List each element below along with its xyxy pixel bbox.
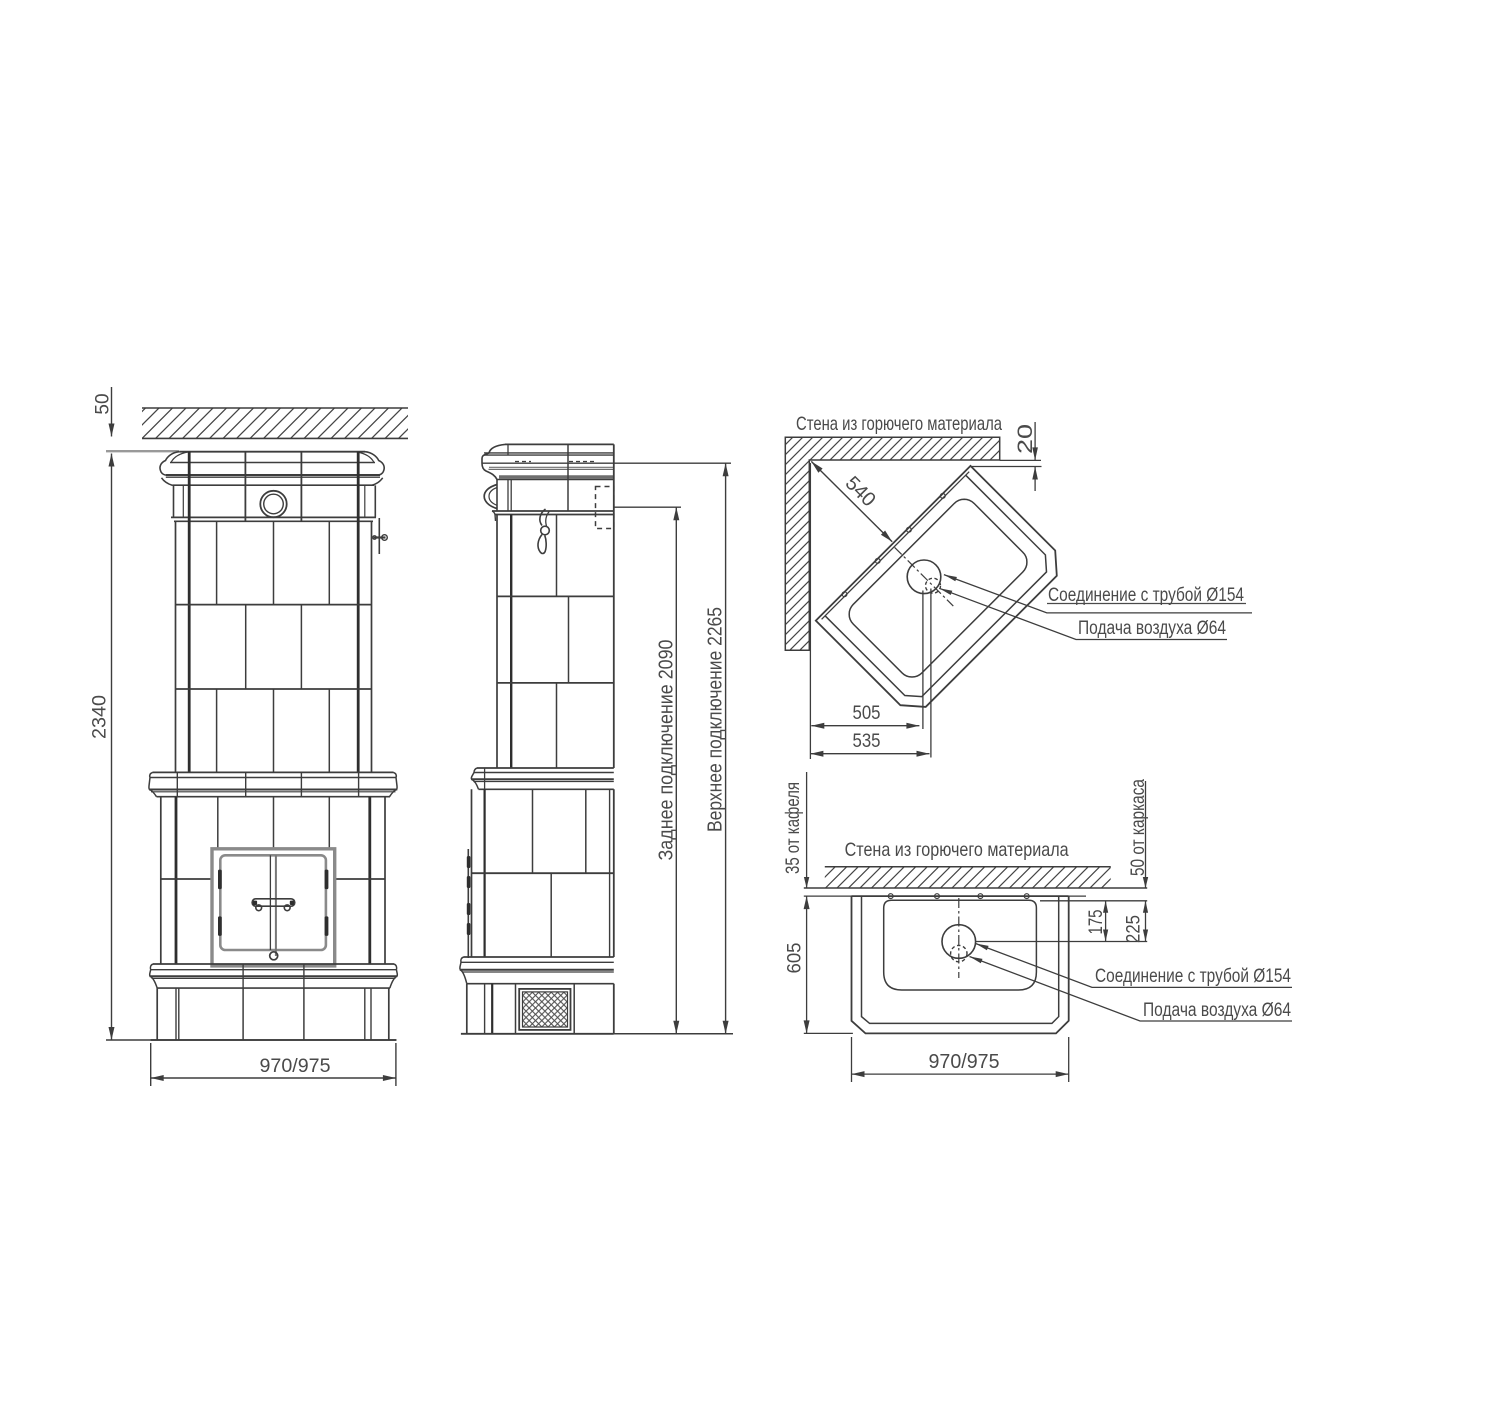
- svg-text:605: 605: [785, 943, 806, 974]
- svg-text:50 от каркаса: 50 от каркаса: [1128, 779, 1149, 876]
- svg-text:970/975: 970/975: [929, 1051, 1000, 1073]
- svg-text:970/975: 970/975: [260, 1056, 331, 1077]
- svg-text:35 от кафеля: 35 от кафеля: [783, 782, 804, 874]
- svg-text:Подача воздуха Ø64: Подача воздуха Ø64: [1143, 1000, 1291, 1021]
- svg-text:505: 505: [853, 703, 881, 724]
- svg-text:535: 535: [853, 731, 881, 752]
- svg-text:Верхнее подключение 2265: Верхнее подключение 2265: [705, 607, 727, 832]
- svg-text:Стена из горючего материала: Стена из горючего материала: [796, 413, 1002, 435]
- svg-text:175: 175: [1086, 910, 1107, 935]
- svg-text:Стена из горючего материала: Стена из горючего материала: [845, 839, 1069, 861]
- svg-text:225: 225: [1124, 915, 1145, 943]
- svg-text:20: 20: [1014, 424, 1037, 454]
- svg-text:Соединение с трубой Ø154: Соединение с трубой Ø154: [1048, 585, 1244, 606]
- svg-text:Соединение с трубой Ø154: Соединение с трубой Ø154: [1095, 966, 1291, 987]
- svg-text:Подача воздуха Ø64: Подача воздуха Ø64: [1078, 618, 1226, 639]
- svg-text:2340: 2340: [90, 695, 111, 739]
- svg-text:Заднее подключение 2090: Заднее подключение 2090: [656, 640, 678, 861]
- svg-text:50: 50: [93, 393, 114, 414]
